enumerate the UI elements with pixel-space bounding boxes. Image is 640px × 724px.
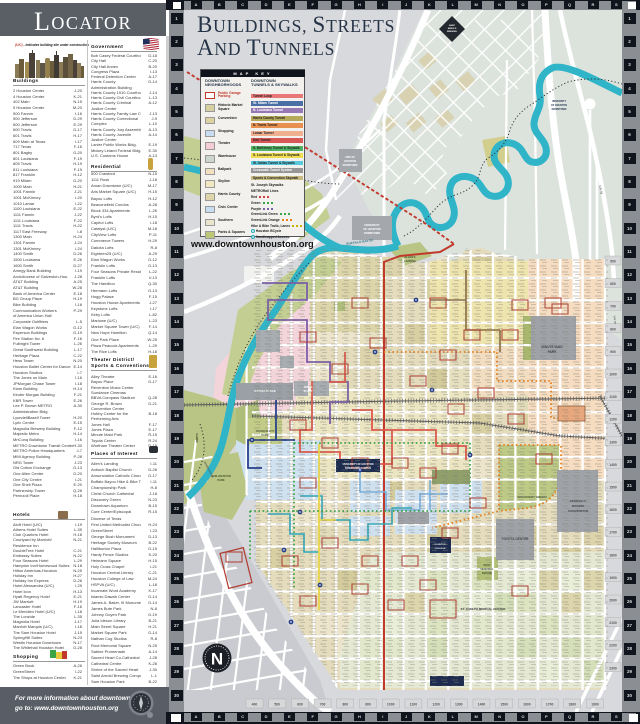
svg-text:1500: 1500	[609, 486, 617, 490]
svg-text:1900: 1900	[609, 576, 617, 580]
svg-text:PARK: PARK	[217, 478, 224, 482]
svg-text:800: 800	[610, 327, 616, 331]
svg-text:1000: 1000	[609, 373, 617, 377]
svg-text:1200: 1200	[432, 703, 440, 707]
svg-text:1300: 1300	[609, 440, 617, 444]
svg-text:1000: 1000	[387, 703, 395, 707]
svg-text:600: 600	[610, 282, 616, 286]
svg-text:800: 800	[342, 703, 348, 707]
svg-text:500: 500	[274, 703, 280, 707]
svg-text:700: 700	[610, 305, 616, 309]
svg-text:U.S. 59: U.S. 59	[613, 315, 618, 325]
svg-text:UNIVERSITY: UNIVERSITY	[552, 100, 567, 103]
svg-text:ALLEN'S: ALLEN'S	[405, 255, 416, 259]
svg-text:400: 400	[252, 703, 258, 707]
svg-text:1100: 1100	[609, 395, 616, 399]
svg-text:1700: 1700	[609, 531, 617, 535]
svg-text:1400: 1400	[478, 703, 486, 707]
svg-text:HOUSTON: HOUSTON	[344, 160, 356, 163]
svg-text:1100: 1100	[410, 703, 417, 707]
svg-text:UNIV OF: UNIV OF	[345, 156, 355, 159]
svg-text:500: 500	[610, 260, 616, 264]
svg-text:900: 900	[365, 703, 371, 707]
svg-text:OF HOUSTON: OF HOUSTON	[551, 104, 567, 107]
svg-text:DOWNTOWN: DOWNTOWN	[343, 164, 358, 167]
svg-text:1900: 1900	[591, 703, 599, 707]
svg-text:1500: 1500	[500, 703, 508, 707]
svg-text:OF HOUSTON: OF HOUSTON	[363, 227, 380, 231]
svg-text:2100: 2100	[609, 621, 617, 625]
svg-text:2200: 2200	[609, 644, 617, 648]
svg-text:DOWNTOWN: DOWNTOWN	[552, 108, 567, 111]
svg-text:DOWNTOWN: DOWNTOWN	[364, 231, 380, 235]
svg-text:700: 700	[320, 703, 326, 707]
svg-text:1800: 1800	[609, 553, 617, 557]
svg-text:1800: 1800	[569, 703, 577, 707]
svg-text:1200: 1200	[609, 418, 617, 422]
svg-text:600: 600	[297, 703, 303, 707]
svg-text:1600: 1600	[523, 703, 531, 707]
svg-text:1400: 1400	[609, 463, 617, 467]
svg-text:1600: 1600	[609, 508, 617, 512]
svg-text:1300: 1300	[455, 703, 463, 707]
svg-text:B: B	[290, 620, 292, 624]
svg-text:SABINE: SABINE	[195, 433, 199, 443]
svg-text:1700: 1700	[546, 703, 554, 707]
svg-text:2000: 2000	[609, 599, 617, 603]
svg-text:2300: 2300	[609, 666, 617, 670]
svg-text:900: 900	[610, 350, 616, 354]
svg-text:UNIVERSITY: UNIVERSITY	[364, 223, 380, 227]
svg-text:N: N	[211, 650, 223, 669]
